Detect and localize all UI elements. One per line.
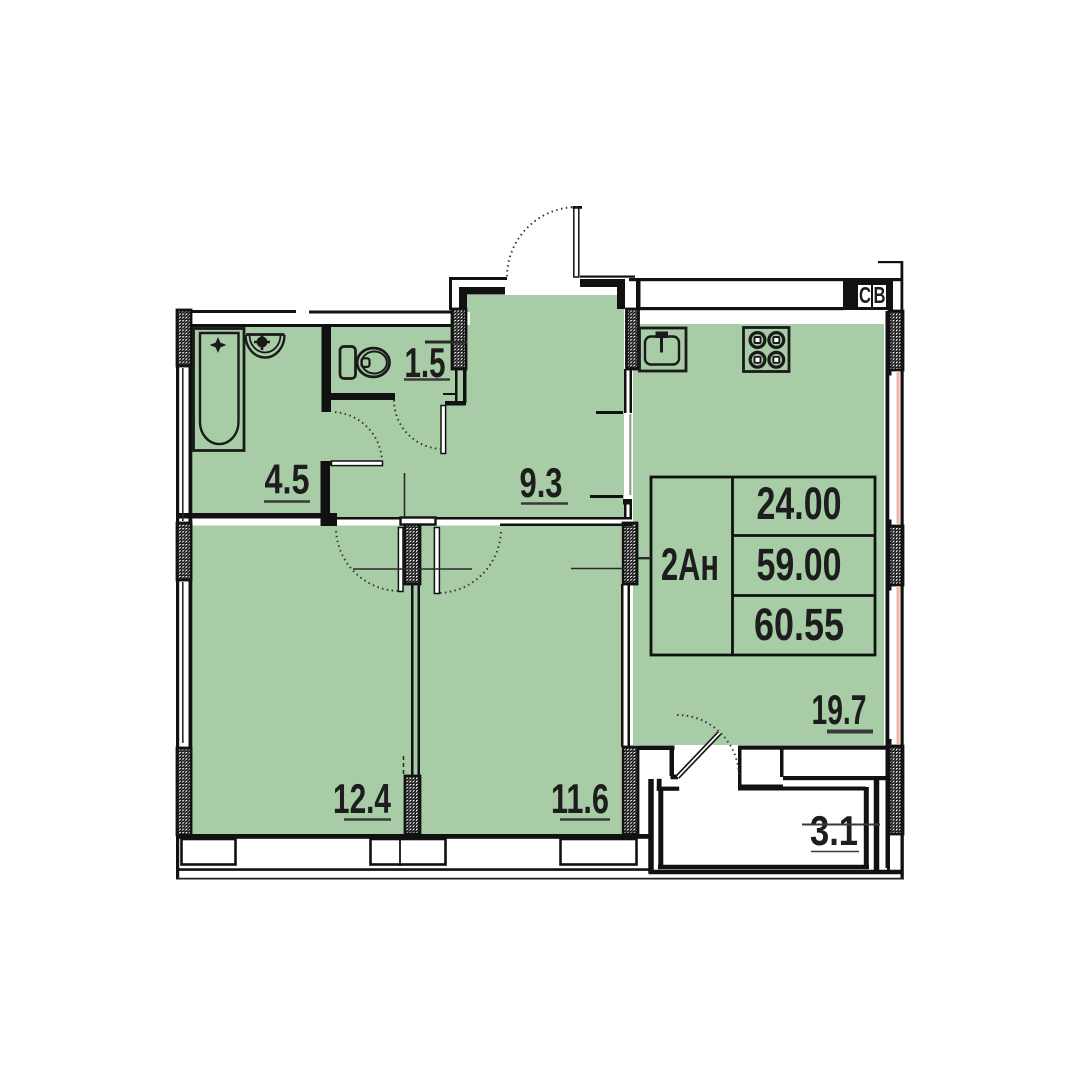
- svg-text:60.55: 60.55: [754, 599, 844, 650]
- svg-text:24.00: 24.00: [757, 478, 842, 529]
- svg-text:19.7: 19.7: [812, 686, 867, 733]
- svg-text:12.4: 12.4: [333, 775, 391, 822]
- svg-text:2Ан: 2Ан: [661, 539, 719, 590]
- svg-text:11.6: 11.6: [551, 775, 609, 822]
- svg-text:В: В: [874, 282, 886, 308]
- svg-text:9.3: 9.3: [520, 459, 563, 506]
- svg-text:4.5: 4.5: [265, 456, 310, 503]
- svg-text:С: С: [859, 282, 871, 308]
- svg-text:3.1: 3.1: [810, 807, 858, 854]
- svg-text:59.00: 59.00: [757, 539, 842, 590]
